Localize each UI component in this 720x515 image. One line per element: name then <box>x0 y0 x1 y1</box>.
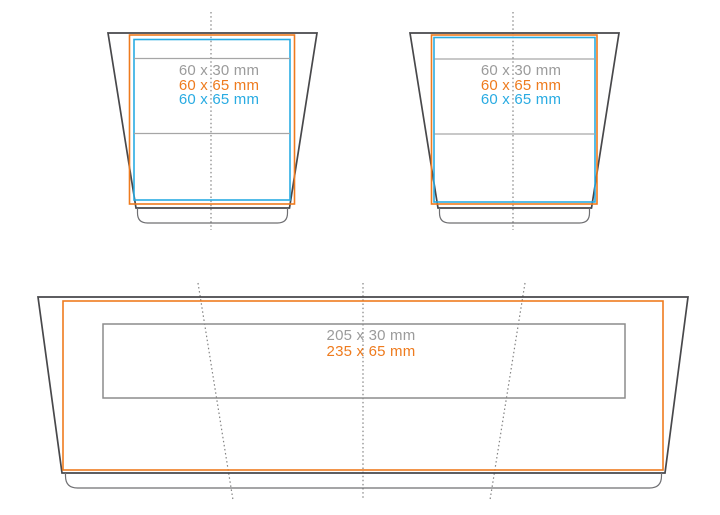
tray-group <box>38 283 688 500</box>
pot-front-base-lip <box>138 208 288 223</box>
tray-area1-label: 205 x 30 mm <box>291 328 451 344</box>
template-shapes <box>0 0 720 515</box>
print-template-canvas: 60 x 30 mm 60 x 65 mm 60 x 65 mm 60 x 30… <box>0 0 720 515</box>
pot-back-group <box>410 12 619 230</box>
pot-back-print-area-orange <box>432 35 598 204</box>
pot-back-dimension-labels: 60 x 30 mm 60 x 65 mm 60 x 65 mm <box>456 64 586 108</box>
pot-back-base-lip <box>440 208 590 223</box>
tray-right-dotted-line <box>490 283 525 500</box>
tray-left-dotted-line <box>198 283 233 500</box>
pot-front-outline <box>108 33 317 208</box>
tray-area2-label: 235 x 65 mm <box>291 344 451 360</box>
pot-front-print-area-orange <box>130 35 295 204</box>
tray-dimension-labels: 205 x 30 mm 235 x 65 mm <box>291 328 451 360</box>
pot-front-dimension-labels: 60 x 30 mm 60 x 65 mm 60 x 65 mm <box>154 64 284 108</box>
pot-back-area3-label: 60 x 65 mm <box>456 93 586 108</box>
pot-front-group <box>108 12 317 230</box>
pot-front-area3-label: 60 x 65 mm <box>154 93 284 108</box>
